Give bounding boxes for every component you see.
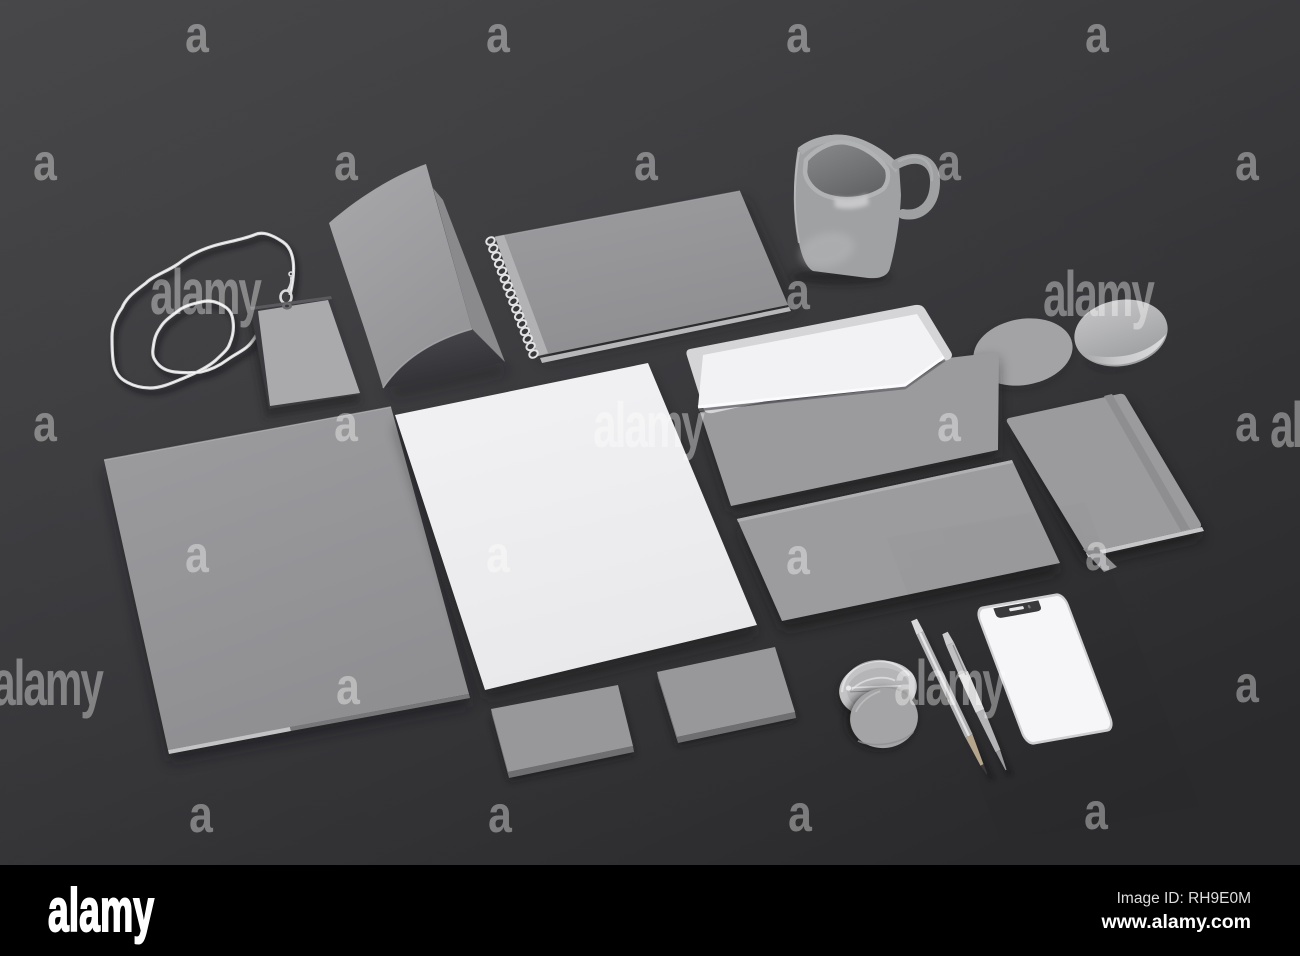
svg-text:alamy: alamy	[1043, 259, 1155, 330]
svg-text:a: a	[937, 395, 961, 453]
svg-text:a: a	[786, 263, 810, 321]
svg-text:a: a	[33, 134, 57, 192]
svg-text:a: a	[788, 785, 812, 843]
svg-text:alamy: alamy	[1270, 390, 1300, 461]
svg-text:a: a	[786, 6, 810, 64]
svg-text:www.alamy.com: www.alamy.com	[1100, 911, 1251, 933]
svg-text:alamy: alamy	[894, 648, 1006, 719]
svg-text:alamy: alamy	[48, 877, 154, 944]
svg-text:alamy: alamy	[593, 390, 705, 461]
svg-text:a: a	[634, 134, 658, 192]
svg-text:a: a	[334, 134, 358, 192]
svg-text:a: a	[33, 395, 57, 453]
svg-text:Image ID: RH9E0M: Image ID: RH9E0M	[1117, 890, 1251, 907]
svg-text:a: a	[185, 6, 209, 64]
svg-text:a: a	[1085, 524, 1109, 582]
svg-text:a: a	[336, 658, 360, 716]
svg-text:a: a	[1235, 134, 1259, 192]
svg-text:alamy: alamy	[150, 257, 262, 328]
svg-text:a: a	[486, 6, 510, 64]
svg-text:a: a	[189, 786, 213, 844]
svg-text:a: a	[488, 786, 512, 844]
svg-text:a: a	[185, 526, 209, 584]
svg-text:a: a	[334, 395, 358, 453]
svg-text:a: a	[486, 526, 510, 584]
svg-text:a: a	[786, 528, 810, 586]
svg-text:alamy: alamy	[0, 648, 104, 719]
svg-text:a: a	[1235, 656, 1259, 714]
svg-text:a: a	[937, 134, 961, 192]
svg-text:a: a	[1085, 6, 1109, 64]
svg-text:a: a	[1235, 395, 1259, 453]
svg-text:a: a	[1084, 783, 1108, 841]
